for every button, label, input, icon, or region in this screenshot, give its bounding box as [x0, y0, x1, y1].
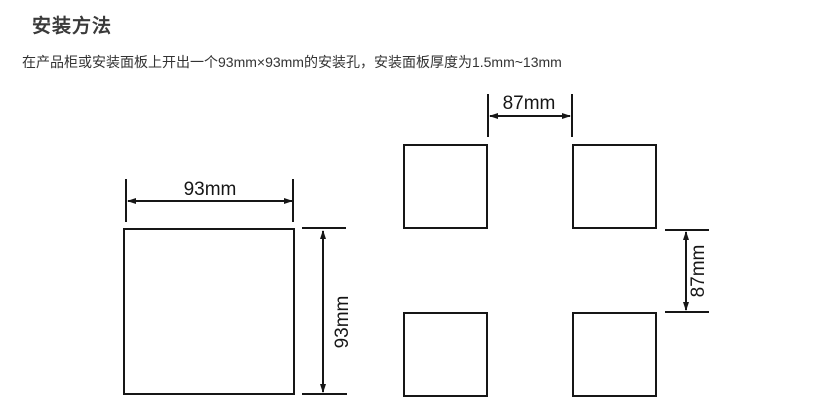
- v-gap-dimension-label: 87mm: [689, 231, 709, 311]
- width-arrowhead-right: [284, 198, 293, 204]
- height-arrowhead-top: [320, 230, 326, 239]
- grid-square-top-left: [403, 144, 488, 229]
- h-gap-dimension-label: 87mm: [489, 94, 569, 113]
- installation-instructions-page: 安装方法 在产品柜或安装面板上开出一个93mm×93mm的安装孔，安装面板厚度为…: [0, 0, 820, 415]
- width-arrowhead-left: [127, 198, 136, 204]
- width-dimension-label: 93mm: [170, 180, 250, 199]
- single-cutout-square: [123, 228, 295, 395]
- grid-square-top-right: [572, 144, 657, 229]
- h-gap-arrowhead-left: [489, 113, 498, 119]
- width-dimension-line: [128, 200, 292, 202]
- grid-square-bottom-left: [403, 312, 488, 397]
- instruction-text: 在产品柜或安装面板上开出一个93mm×93mm的安装孔，安装面板厚度为1.5mm…: [22, 52, 562, 72]
- height-dimension-line: [322, 231, 324, 392]
- height-extension-line-bottom: [302, 393, 347, 395]
- h-gap-arrowhead-right: [562, 113, 571, 119]
- height-extension-line-top: [302, 227, 346, 229]
- v-gap-dimension-line: [685, 232, 687, 310]
- grid-square-bottom-right: [572, 312, 657, 397]
- height-arrowhead-bottom: [320, 384, 326, 393]
- h-gap-extension-line-right: [571, 94, 573, 137]
- height-dimension-label: 93mm: [333, 282, 353, 362]
- section-title: 安装方法: [32, 11, 112, 38]
- v-gap-extension-line-bottom: [665, 311, 709, 313]
- h-gap-dimension-line: [490, 115, 570, 117]
